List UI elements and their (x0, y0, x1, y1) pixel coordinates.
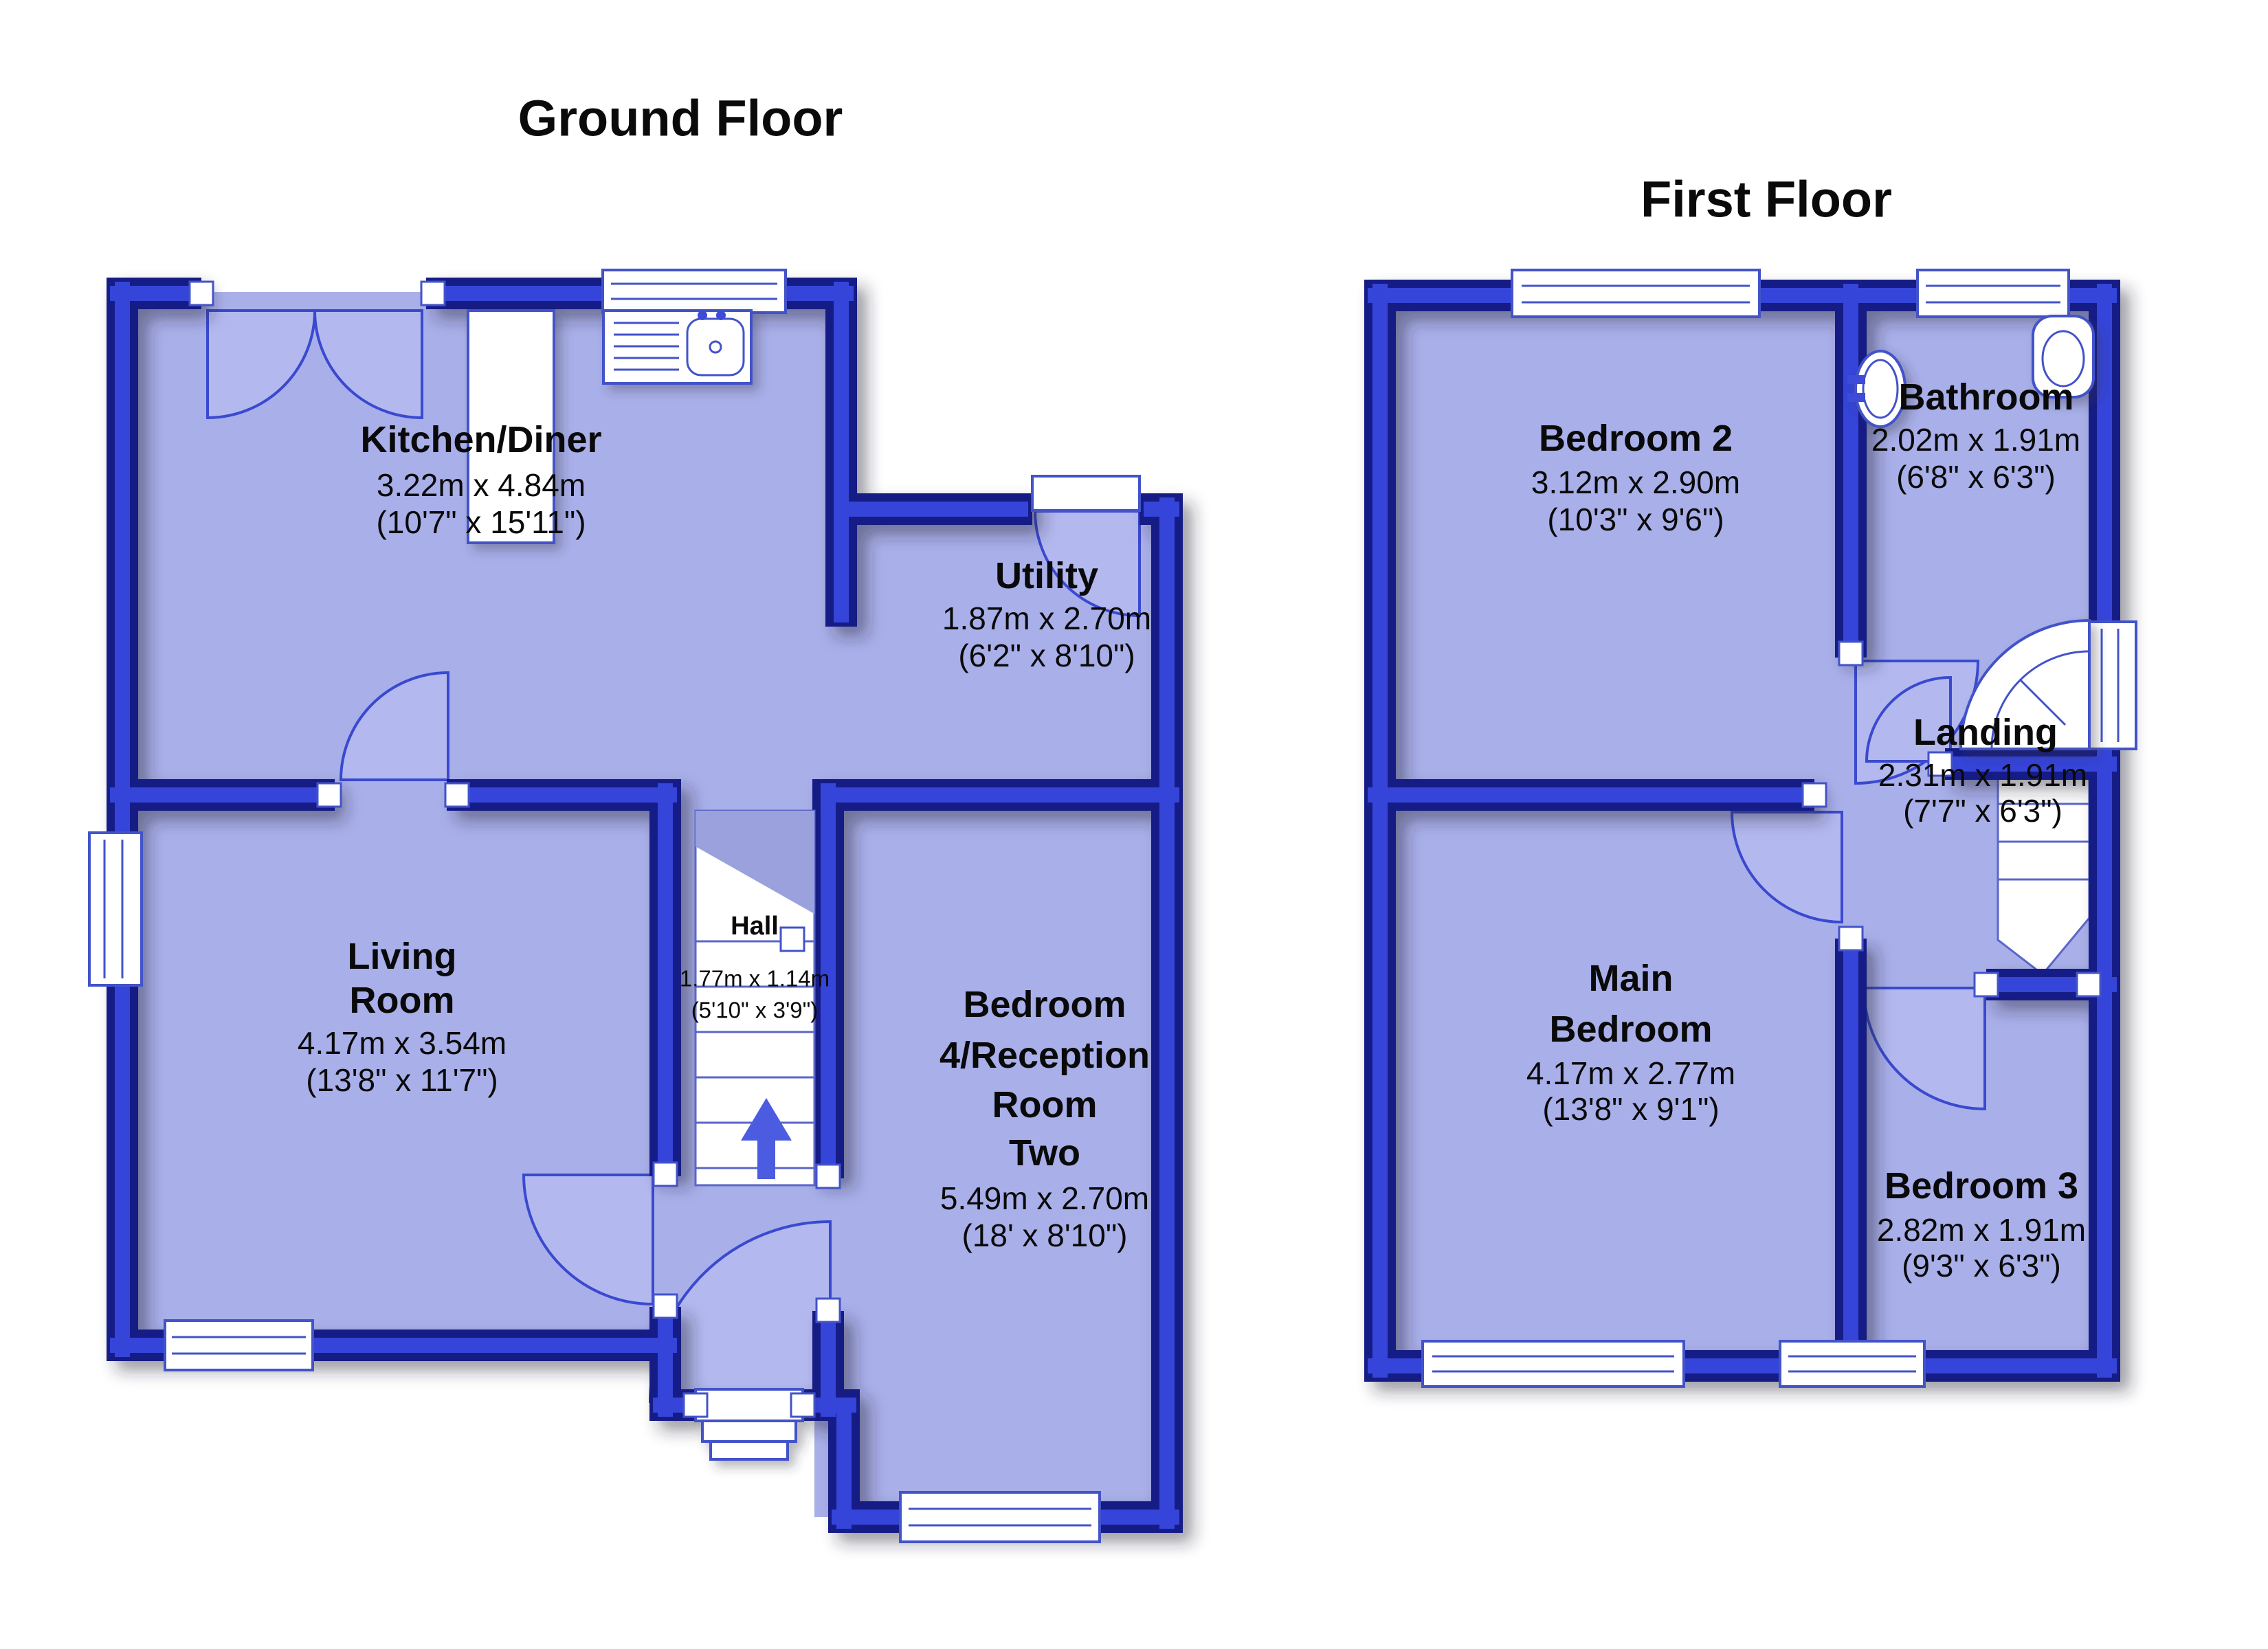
tap-icon (698, 311, 707, 320)
main-bedroom-size-ft: (13'8" x 9'1") (1542, 1091, 1719, 1127)
living-size-m: 4.17m x 3.54m (298, 1025, 507, 1061)
landing-right-window (2087, 622, 2136, 749)
ground-floor-plan: Ground Floor Kitchen/Diner 3.22m x 4.84m… (89, 90, 1183, 1543)
bedroom4-name-4: Two (1009, 1132, 1080, 1174)
bedroom4-name-2: 4/Reception (940, 1035, 1150, 1076)
bathroom-top-window (1917, 270, 2069, 317)
porch-step (702, 1421, 796, 1442)
bedroom4-size-ft: (18' x 8'10") (961, 1218, 1127, 1253)
bedroom2-size-m: 3.12m x 2.90m (1531, 464, 1740, 500)
bedroom4-name-3: Room (992, 1084, 1098, 1125)
kitchen-size-m: 3.22m x 4.84m (377, 467, 586, 503)
main-bedroom-bottom-window (1423, 1341, 1684, 1387)
hall-size-m: 1.77m x 1.14m (680, 966, 830, 991)
kitchen-name: Kitchen/Diner (360, 419, 601, 460)
bedroom3-bottom-window (1780, 1341, 1924, 1387)
landing-size-m: 2.31m x 1.91m (1878, 757, 2087, 793)
utility-size-m: 1.87m x 2.70m (942, 601, 1151, 636)
living-name-2: Room (350, 980, 455, 1021)
hall-size-ft: (5'10" x 3'9") (691, 998, 819, 1023)
main-bedroom-size-m: 4.17m x 2.77m (1526, 1055, 1735, 1091)
bathroom-size-m: 2.02m x 1.91m (1871, 422, 2080, 458)
bedroom4-size-m: 5.49m x 2.70m (940, 1180, 1149, 1216)
ground-floor-title: Ground Floor (518, 90, 843, 147)
kitchen-size-ft: (10'7" x 15'11") (376, 504, 586, 540)
utility-name: Utility (995, 555, 1098, 596)
bathroom-size-ft: (6'8" x 6'3") (1896, 459, 2056, 495)
bedroom3-size-m: 2.82m x 1.91m (1877, 1212, 2086, 1248)
living-size-ft: (13'8" x 11'7") (306, 1062, 498, 1098)
hall-name: Hall (731, 912, 779, 941)
utility-door-leaf (1032, 476, 1139, 511)
front-door-threshold (696, 1389, 803, 1421)
bedroom2-top-window (1512, 270, 1759, 317)
kitchen-top-window (603, 270, 786, 313)
floorplan-canvas: Ground Floor Kitchen/Diner 3.22m x 4.84m… (0, 0, 2268, 1649)
main-bedroom-name-1: Main (1588, 958, 1673, 999)
front-door (696, 1389, 803, 1459)
first-floor-plan: First Floor Bedroom 2 3.12m x 2.90m (10'… (1364, 171, 2136, 1387)
first-floor-title: First Floor (1641, 171, 1892, 228)
living-room-bottom-window (165, 1321, 313, 1370)
landing-size-ft: (7'7" x 6'3") (1903, 793, 2063, 829)
bedroom3-size-ft: (9'3" x 6'3") (1902, 1248, 2061, 1283)
living-name-1: Living (348, 936, 457, 977)
porch-step (711, 1442, 788, 1459)
utility-size-ft: (6'2" x 8'10") (958, 638, 1135, 673)
bathroom-name: Bathroom (1899, 377, 2074, 418)
bedroom4-room (814, 795, 1167, 1517)
floorplan-page: Ground Floor Kitchen/Diner 3.22m x 4.84m… (0, 0, 2268, 1649)
main-bedroom-name-2: Bedroom (1549, 1009, 1712, 1050)
bedroom4-name-1: Bedroom (963, 984, 1126, 1025)
landing-name: Landing (1913, 712, 2058, 753)
bedroom2-size-ft: (10'3" x 9'6") (1547, 502, 1724, 537)
tap-icon (716, 311, 726, 320)
bedroom3-name: Bedroom 3 (1885, 1165, 2078, 1207)
living-room-left-window (89, 833, 142, 985)
bedroom4-bottom-window (900, 1492, 1100, 1542)
bedroom2-name: Bedroom 2 (1539, 418, 1733, 459)
